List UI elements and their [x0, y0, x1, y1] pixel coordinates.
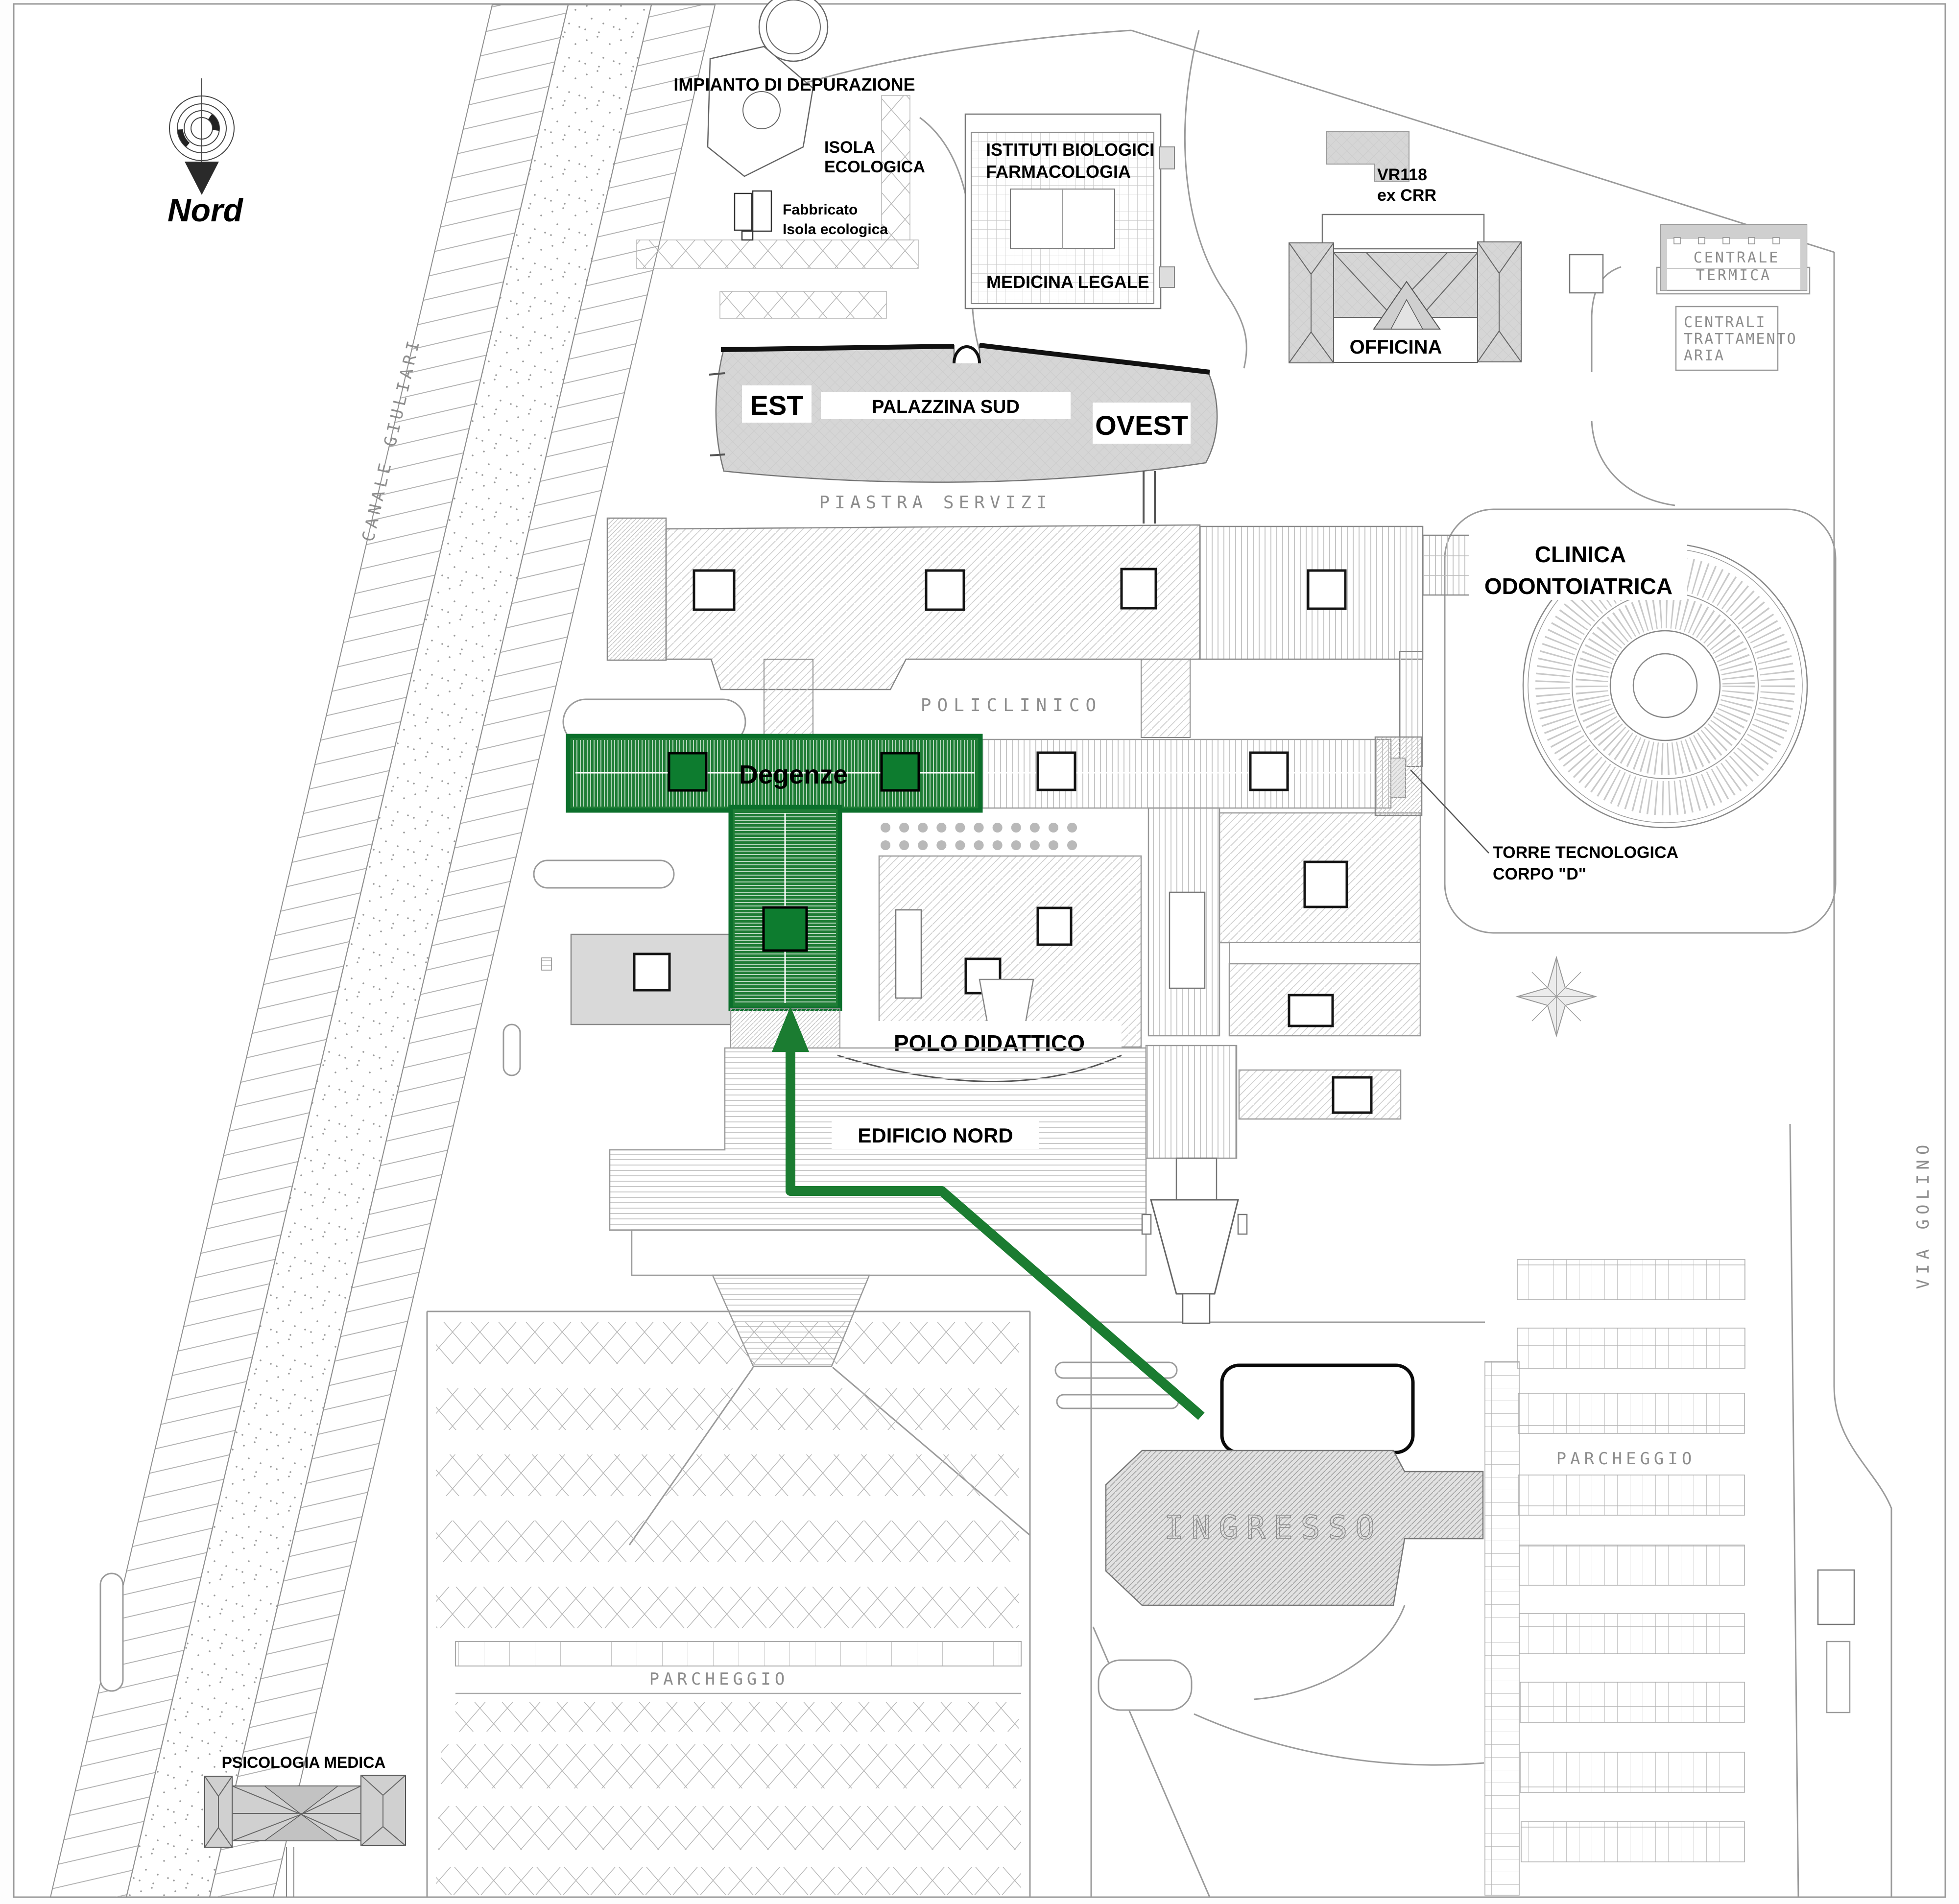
istituti-label-2: FARMACOLOGIA: [986, 162, 1131, 182]
gatehouse-building: [1818, 1570, 1854, 1624]
funnel-tower-top: [1146, 1046, 1237, 1158]
traffic-island: [1057, 1395, 1178, 1408]
hedge-strip-horizontal: [720, 291, 886, 318]
est-label: EST: [750, 390, 804, 421]
edificio-nord-south-slab: [632, 1230, 1146, 1275]
west-gray-courtyard: [634, 954, 669, 990]
torre-label-1: TORRE TECNOLOGICA: [1493, 843, 1678, 862]
via-golino-label: VIA GOLINO: [1913, 1140, 1933, 1289]
edificio-nord-label: EDIFICIO NORD: [858, 1124, 1013, 1147]
parcheggio-right-label: PARCHEGGIO: [1556, 1449, 1696, 1469]
degenze-core: [882, 753, 919, 790]
policlinico-connector: [1141, 659, 1190, 738]
istituti-label-1: ISTITUTI BIOLOGICI: [986, 140, 1154, 160]
piastra-west-block: [607, 518, 666, 660]
traffic-island: [503, 1024, 520, 1075]
funnel-tab: [1142, 1214, 1151, 1234]
parking-row-zigzag: [436, 1521, 1019, 1562]
piastra-courtyard: [1122, 569, 1156, 608]
small-kiosk: [542, 958, 551, 970]
officina-label: OFFICINA: [1350, 336, 1442, 358]
entrance-canopy: [1222, 1365, 1413, 1452]
parking-row-zigzag: [436, 1867, 1021, 1895]
polo-courtyard: [1333, 1077, 1371, 1113]
compass-label: Nord: [167, 192, 244, 228]
parking-row-zigzag: [436, 1388, 1019, 1430]
parking-row: [1520, 1752, 1744, 1792]
palazzina-label: PALAZZINA SUD: [872, 397, 1020, 417]
parking-row-zigzag: [455, 1702, 1019, 1732]
campus-map: CANALE GIULIARI: [0, 0, 1959, 1904]
funnel-stem: [1183, 1294, 1210, 1323]
piastra-courtyard: [694, 571, 734, 610]
centrale-label-2: TERMICA: [1696, 267, 1771, 284]
centrale-termica: CENTRALE TERMICA: [1657, 225, 1810, 294]
parking-left: PARCHEGGIO: [436, 1322, 1021, 1895]
fabbricato-label-1: Fabbricato: [783, 202, 858, 218]
policlinico-connector: [764, 659, 813, 738]
istituti-tab: [1160, 267, 1174, 287]
degenze-label: Degenze: [739, 760, 848, 789]
clinica-label-1: CLINICA: [1535, 542, 1626, 567]
clinica-label-2: ODONTOIATRICA: [1484, 573, 1672, 599]
cta-label-1: CENTRALI: [1684, 314, 1767, 331]
parcheggio-left-label: PARCHEGGIO: [649, 1669, 789, 1689]
parking-stall-row: [455, 1642, 1021, 1666]
ward-courtyard: [1250, 753, 1288, 790]
cta-label-3: ARIA: [1684, 347, 1725, 364]
hedge-strip-horizontal: [637, 240, 918, 268]
istituti-tab: [1160, 147, 1174, 169]
parking-row-zigzag: [436, 1587, 1019, 1628]
roadside-stalls: [1485, 1361, 1519, 1895]
parking-row: [1517, 1260, 1745, 1300]
traffic-island: [534, 860, 674, 888]
small-utility-square: [1570, 255, 1603, 293]
isola-label-2: ECOLOGICA: [824, 158, 925, 176]
degenze-core: [764, 907, 807, 951]
polo-courtyard: [1038, 908, 1071, 945]
traffic-island: [1099, 1660, 1192, 1710]
ingresso-label: INGRESSO: [1164, 1509, 1383, 1547]
officina-annex: [1322, 214, 1484, 249]
ward-courtyard: [1038, 753, 1075, 790]
torre-label-2: CORPO "D": [1493, 865, 1586, 883]
palazzina-top-edge-west: [721, 346, 954, 350]
parking-row-zigzag: [436, 1454, 1019, 1496]
parking-row: [1518, 1393, 1744, 1433]
piastra-courtyard: [926, 571, 964, 610]
parking-row: [1520, 1682, 1744, 1722]
polo-band: [1229, 943, 1420, 964]
polo-courtyard: [1305, 862, 1347, 907]
traffic-island: [100, 1573, 123, 1691]
medicina-legale-label: MEDICINA LEGALE: [986, 272, 1149, 292]
parking-row-zigzag: [438, 1806, 1021, 1850]
vr118-label: VR118: [1377, 166, 1427, 184]
torre-tecnologica-building: [1375, 737, 1422, 815]
psicologia-label: PSICOLOGIA MEDICA: [222, 1754, 386, 1771]
map-canvas: CANALE GIULIARI: [0, 0, 1959, 1904]
centrale-top-band: [1661, 225, 1807, 239]
centrale-label-1: CENTRALE: [1694, 249, 1780, 266]
ovest-label: OVEST: [1095, 410, 1188, 441]
parking-row: [1519, 1545, 1744, 1585]
fabbricato-label-2: Isola ecologica: [783, 221, 888, 238]
piastra-servizi-label: PIASTRA SERVIZI: [819, 493, 1051, 513]
funnel-tab: [1238, 1214, 1247, 1234]
cta-label-2: TRATTAMENTO: [1684, 331, 1797, 348]
excrr-label: ex CRR: [1377, 186, 1436, 205]
parking-row: [1517, 1328, 1745, 1368]
degenze-core: [669, 753, 706, 790]
plant-tank: [743, 92, 780, 129]
parking-row: [1519, 1614, 1744, 1654]
polo-slab: [896, 910, 921, 998]
spine-slab: [1170, 892, 1205, 988]
parking-row: [1518, 1475, 1744, 1515]
funnel-neck: [1176, 1158, 1217, 1200]
policlinico-label: POLICLINICO: [921, 695, 1102, 715]
parking-row-zigzag: [441, 1744, 1021, 1788]
parking-row-zigzag: [436, 1322, 1019, 1364]
polo-courtyard: [1289, 995, 1333, 1026]
polo-block-south: [1239, 1070, 1401, 1119]
isola-label-1: ISOLA: [824, 138, 875, 157]
tank-circle-inner: [766, 0, 820, 54]
parking-row: [1521, 1822, 1744, 1862]
impianto-label: IMPIANTO DI DEPURAZIONE: [673, 74, 915, 95]
gatehouse-annex: [1827, 1642, 1850, 1713]
istituti-biologici: ISTITUTI BIOLOGICI FARMACOLOGIA MEDICINA…: [965, 114, 1174, 309]
piastra-courtyard: [1308, 571, 1345, 609]
